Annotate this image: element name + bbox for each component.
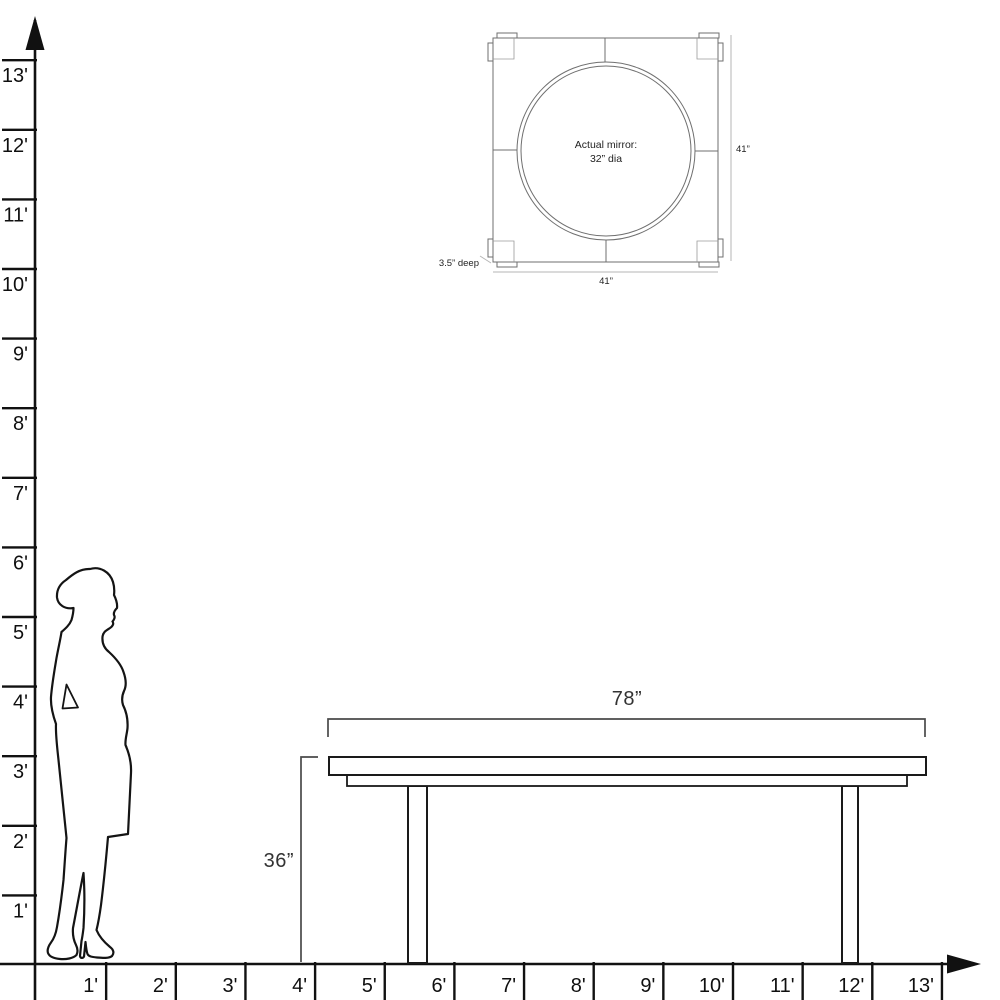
horizontal-ticks: 1'2'3'4'5'6'7'8'9'10'11'12'13' (83, 962, 942, 1000)
mirror-note-line1: Actual mirror: (575, 139, 637, 151)
table-width-dimension-bracket (328, 719, 925, 737)
v-tick-label: 2' (13, 831, 28, 853)
scale-diagram: 1'2'3'4'5'6'7'8'9'10'11'12'13' 1'2'3'4'5… (0, 0, 1000, 1000)
h-tick-label: 4' (292, 975, 307, 997)
mirror-tab-right-lower (718, 239, 723, 257)
h-tick-label: 1' (83, 975, 98, 997)
v-tick-label: 11' (3, 204, 28, 226)
h-tick-label: 11' (770, 975, 795, 997)
mirror-tab-left-upper (488, 43, 493, 61)
vertical-ticks: 1'2'3'4'5'6'7'8'9'10'11'12'13' (2, 60, 37, 922)
woman-silhouette (48, 568, 131, 959)
table-top (329, 757, 926, 775)
mirror-depth-label: 3.5” deep (439, 258, 479, 269)
table-height-label: 36” (264, 850, 294, 872)
h-tick-label: 12' (838, 975, 864, 997)
h-tick-label: 3' (222, 975, 237, 997)
mirror-glass-outer (517, 62, 695, 240)
h-tick-label: 9' (640, 975, 655, 997)
h-tick-label: 5' (362, 975, 377, 997)
horizontal-axis-arrow-icon (947, 955, 981, 974)
table-leg-front (408, 786, 427, 963)
scale-diagram-page: 1'2'3'4'5'6'7'8'9'10'11'12'13' 1'2'3'4'5… (0, 0, 1000, 1000)
v-tick-label: 12' (2, 135, 28, 157)
v-tick-label: 6' (13, 552, 28, 574)
vertical-ruler: 1'2'3'4'5'6'7'8'9'10'11'12'13' (2, 16, 45, 1000)
v-tick-label: 9' (13, 344, 28, 366)
h-tick-label: 7' (501, 975, 516, 997)
v-tick-label: 5' (13, 622, 28, 644)
table-drawing: 78” 36” (264, 688, 926, 963)
mirror-tab-right-upper (718, 43, 723, 61)
table-apron (347, 775, 907, 786)
mirror-note-line2: 32” dia (590, 153, 622, 165)
v-tick-label: 3' (13, 761, 28, 783)
mirror-tab-top-right (699, 33, 719, 38)
mirror-height-label: 41” (736, 144, 750, 155)
v-tick-label: 4' (13, 692, 28, 714)
h-tick-label: 2' (153, 975, 168, 997)
mirror-width-label: 41” (599, 276, 613, 287)
horizontal-ruler: 1'2'3'4'5'6'7'8'9'10'11'12'13' (0, 955, 981, 1000)
h-tick-label: 6' (431, 975, 446, 997)
mirror-tab-bottom-right (699, 262, 719, 267)
h-tick-label: 13' (908, 975, 934, 997)
v-tick-label: 7' (13, 483, 28, 505)
v-tick-label: 13' (2, 65, 28, 87)
woman-outline (48, 568, 131, 959)
v-tick-label: 1' (13, 900, 28, 922)
h-tick-label: 10' (699, 975, 725, 997)
table-width-label: 78” (612, 688, 642, 710)
mirror-drawing: Actual mirror: 32” dia 41” 41” 3.5” deep (439, 33, 750, 287)
table-height-dimension-line (301, 757, 318, 962)
v-tick-label: 10' (2, 274, 28, 296)
mirror-tab-top-left (497, 33, 517, 38)
h-tick-label: 8' (571, 975, 586, 997)
vertical-axis-arrow-icon (26, 16, 45, 50)
table-leg-rear (842, 786, 858, 963)
mirror-tab-bottom-left (497, 262, 517, 267)
mirror-tab-left-lower (488, 239, 493, 257)
v-tick-label: 8' (13, 413, 28, 435)
